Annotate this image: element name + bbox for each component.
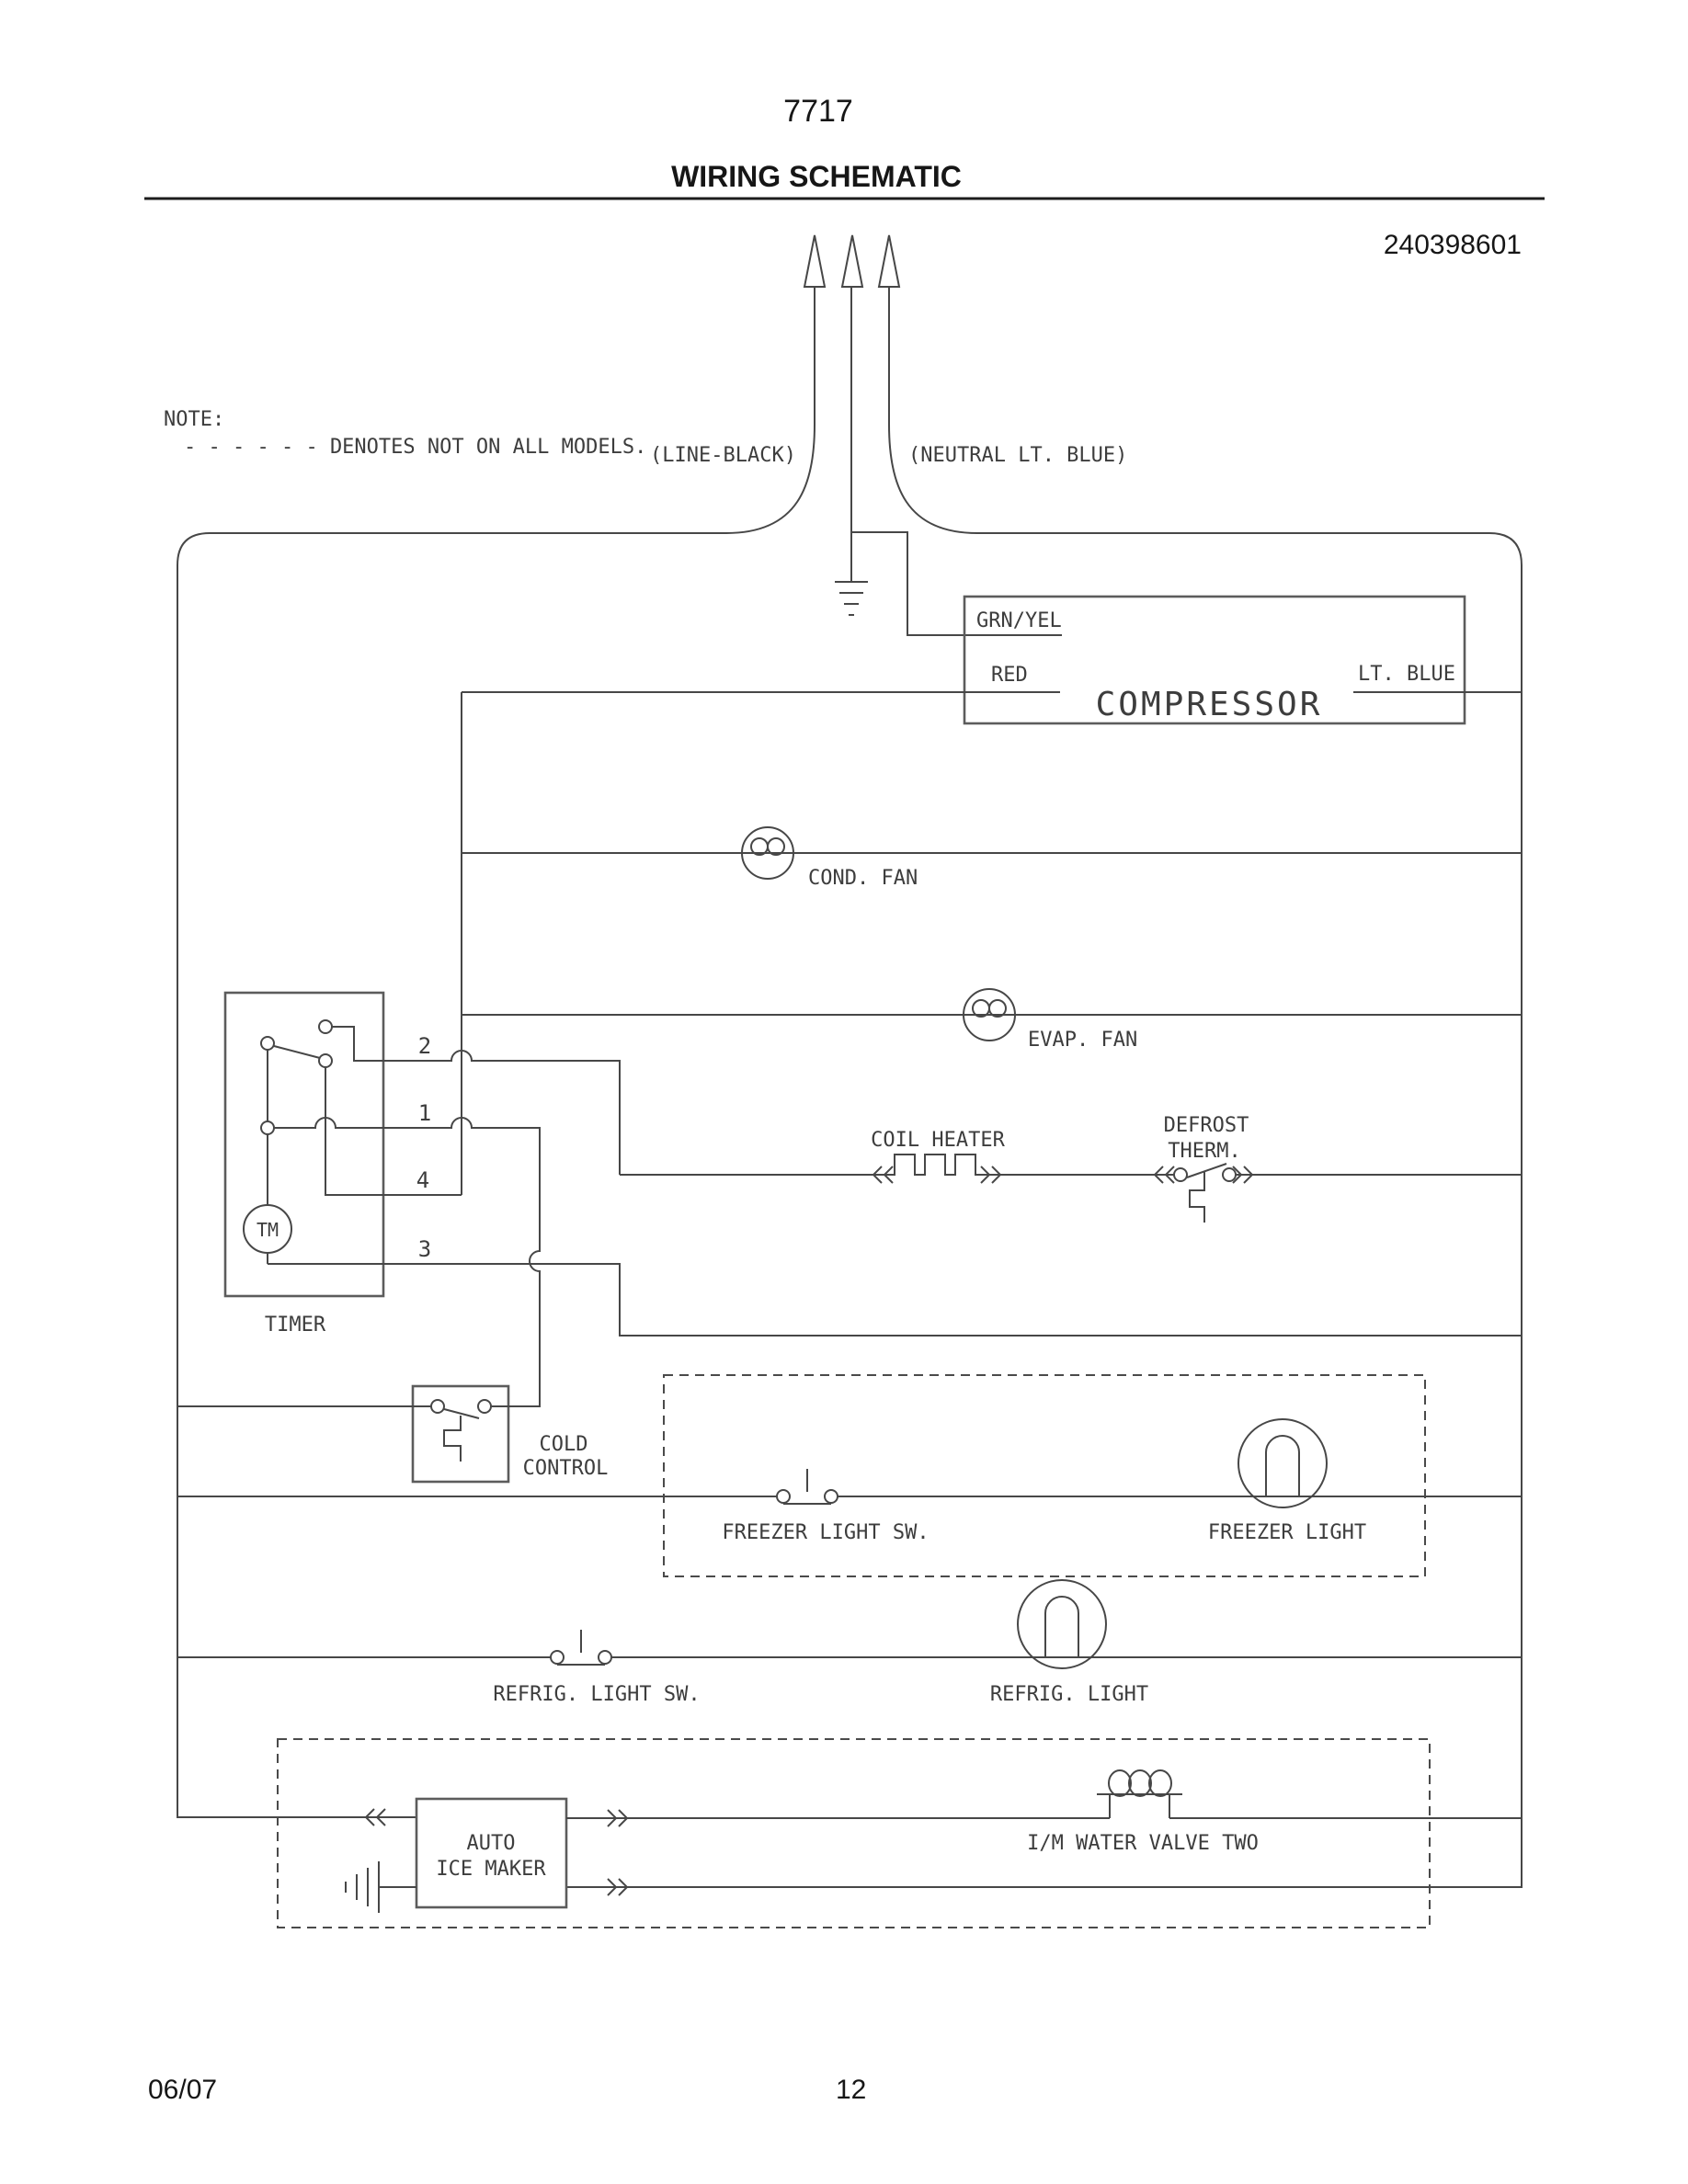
defrost-thermostat: DEFROST THERM. [1155, 1114, 1522, 1223]
ice-maker-label-2: ICE MAKER [436, 1858, 546, 1881]
schematic-page: 7717 WIRING SCHEMATIC 240398601 NOTE: - … [0, 0, 1688, 2184]
page-title: WIRING SCHEMATIC [671, 160, 962, 193]
water-valve-label: I/M WATER VALVE TWO [1027, 1832, 1259, 1855]
timer-terminal-2: 2 [418, 1033, 431, 1059]
freezer-light-lamp [1238, 1419, 1327, 1507]
line-arrow-head [804, 235, 825, 287]
defrost-timer: TM 2 1 4 3 TIMER [225, 993, 1522, 1406]
refrig-light-switch [551, 1630, 611, 1665]
compressor: GRN/YEL RED LT. BLUE COMPRESSOR [964, 597, 1465, 723]
terminal-3-wire [268, 1264, 1522, 1336]
terminal-2-wire [332, 1027, 620, 1175]
freezer-light-sw-label: FREEZER LIGHT SW. [722, 1521, 929, 1544]
doc-number: 7717 [783, 94, 853, 129]
note-text: - - - - - - DENOTES NOT ON ALL MODELS. [184, 436, 646, 459]
cold-control-sensor [444, 1416, 461, 1462]
defrost-therm-sensor [1190, 1171, 1204, 1223]
evap-fan-label: EVAP. FAN [1028, 1029, 1137, 1052]
compressor-label: COMPRESSOR [1096, 686, 1323, 723]
defrost-heater-row: COIL HEATER DEFROST THERM. [620, 1114, 1522, 1223]
cold-control-box [413, 1386, 508, 1482]
ice-maker-circuit: AUTO ICE MAKER I/M WATER VALVE TWO [346, 1770, 1522, 1913]
water-valve-coil [1097, 1770, 1182, 1818]
terminal-1-wire [274, 1118, 540, 1406]
evap-fan: EVAP. FAN [462, 989, 1522, 1052]
neutral-arrow-head [879, 235, 899, 287]
freezer-light-label: FREEZER LIGHT [1208, 1521, 1366, 1544]
neutral-bus [566, 287, 1522, 1887]
ice-maker-ground-symbol [346, 1861, 416, 1913]
freezer-light-dashed-box [664, 1375, 1425, 1576]
note-heading: NOTE: [164, 408, 224, 431]
line-supply-label: (LINE-BLACK) [650, 444, 796, 467]
cold-control: COLD CONTROL [177, 1386, 608, 1482]
refrig-light-label: REFRIG. LIGHT [990, 1683, 1148, 1706]
ground-arrow-head [842, 235, 862, 287]
cond-fan-label: COND. FAN [808, 867, 918, 890]
terminal-4-wire [325, 1067, 462, 1195]
timer-terminal-1: 1 [418, 1100, 431, 1126]
part-number: 240398601 [1384, 230, 1522, 260]
timer-terminal-3: 3 [418, 1236, 431, 1262]
freezer-light-switch [777, 1469, 838, 1504]
footer-page-number: 12 [836, 2075, 866, 2105]
cold-control-label-1: COLD [540, 1433, 588, 1456]
ice-maker-label-1: AUTO [467, 1832, 516, 1855]
defrost-therm-label-1: DEFROST [1164, 1114, 1249, 1137]
timer-terminal-4: 4 [416, 1167, 429, 1193]
line-bus [177, 287, 815, 1817]
defrost-therm-label-2: THERM. [1168, 1140, 1240, 1163]
timer-label: TIMER [265, 1314, 326, 1337]
refrig-light-sw-label: REFRIG. LIGHT SW. [493, 1683, 700, 1706]
footer-date: 06/07 [148, 2075, 217, 2105]
coil-heater-element [620, 1155, 1174, 1175]
wiring-schematic-canvas: 7717 WIRING SCHEMATIC 240398601 NOTE: - … [0, 0, 1688, 2184]
coil-heater-label: COIL HEATER [871, 1129, 1005, 1152]
freezer-light-row: FREEZER LIGHT SW. FREEZER LIGHT [177, 1419, 1522, 1544]
cold-control-label-2: CONTROL [523, 1457, 609, 1480]
timer-box [225, 993, 383, 1296]
cond-fan: COND. FAN [462, 827, 1522, 890]
neutral-supply-label: (NEUTRAL LT. BLUE) [908, 444, 1127, 467]
timer-switch-arm [274, 1046, 320, 1058]
refrig-light-row: REFRIG. LIGHT SW. REFRIG. LIGHT [177, 1580, 1522, 1706]
refrig-light-lamp [1018, 1580, 1106, 1668]
timer-motor-label: TM [257, 1219, 279, 1241]
ground-symbol [835, 287, 868, 615]
compressor-grnyel-label: GRN/YEL [976, 609, 1062, 632]
compressor-red-label: RED [991, 664, 1028, 687]
compressor-ltblue-label: LT. BLUE [1358, 663, 1455, 686]
